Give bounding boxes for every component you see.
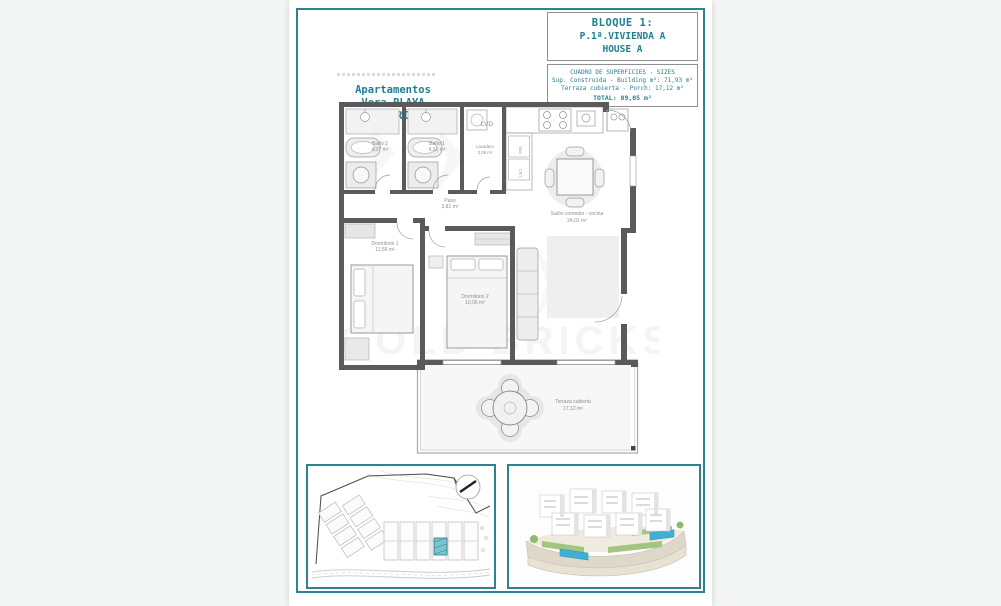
title-block-header: BLOQUE 1: P.1ª.VIVIENDA A HOUSE A [547,12,698,61]
drawing-reference-text [337,73,437,76]
trees [480,526,489,553]
room-label: Terraza cubierta [555,399,591,405]
highlighted-unit [434,538,447,555]
site-plan-map [308,466,494,587]
laundry-lvd-label: LVD [481,121,493,128]
floor-plan: GOLD BRICKS [325,98,659,466]
room-area: 10,06 m² [465,300,485,306]
building-cluster-right [384,522,478,560]
room-area: 17,12 m² [563,406,583,412]
room-area: 3,81 m² [442,204,459,210]
site-plan [306,464,496,589]
house-label: HOUSE A [550,44,695,55]
render-tree [677,522,684,529]
floor-plan-drawing: GOLD BRICKS [325,98,659,466]
sofa-icon [517,248,538,340]
room-label: Salón comedor - cocina [551,211,604,217]
surface-table-header: CUADRO DE SUPERFICIES - SIZES [549,69,696,77]
render-tree [530,535,538,543]
room-area: 24,01 m² [567,218,587,224]
room-area: 11,56 m² [375,247,395,253]
dwelling-label: P.1ª.VIVIENDA A [550,31,695,42]
surface-row-porch: Terraza cubierta - Porch: 17,12 m² [549,85,696,93]
room-area: 4,37 m² [372,147,389,153]
terrace [417,360,638,453]
render-buildings [540,489,670,537]
living-rug [547,236,619,318]
building-render-image [512,469,696,584]
project-title-line1: Apartamentos [307,84,479,97]
road [312,569,490,578]
room-area: 4,31 m² [429,147,446,153]
building-cluster-left [318,489,388,563]
block-label: BLOQUE 1: [550,17,695,29]
title-block: BLOQUE 1: P.1ª.VIVIENDA A HOUSE A CUADRO… [547,12,698,107]
plan-sheet: BLOQUE 1: P.1ª.VIVIENDA A HOUSE A CUADRO… [289,0,712,606]
dishwasher-label: LVJ [518,169,523,176]
room-label: Lavadero [476,144,495,149]
aerial-render [507,464,701,589]
surface-row-building: Sup. Construida - Building m²: 71,93 m² [549,77,696,85]
room-area: 2,08 m² [478,150,493,155]
dining-table-icon [545,147,604,207]
fridge-label: FRI [518,146,523,153]
north-arrow-icon [456,475,480,499]
